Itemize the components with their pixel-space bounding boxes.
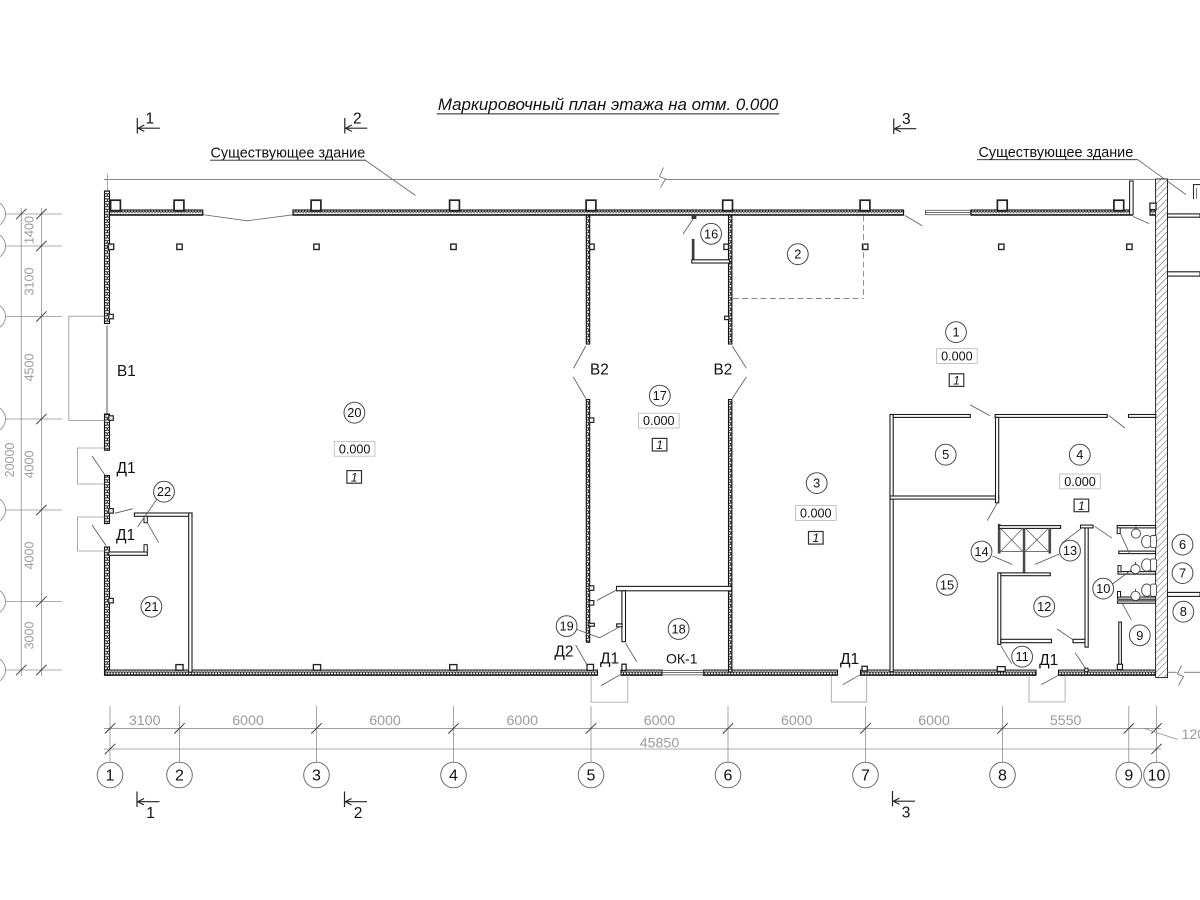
svg-text:0.000: 0.000 <box>941 350 973 364</box>
svg-text:21: 21 <box>144 599 158 614</box>
svg-text:1: 1 <box>106 768 115 785</box>
svg-text:4000: 4000 <box>23 542 37 570</box>
svg-text:3: 3 <box>902 805 911 822</box>
svg-text:Д1: Д1 <box>117 460 136 477</box>
svg-text:1: 1 <box>812 531 819 545</box>
svg-text:7: 7 <box>1179 566 1186 581</box>
svg-text:16: 16 <box>704 226 718 241</box>
svg-text:1200: 1200 <box>1182 727 1200 743</box>
svg-text:4: 4 <box>1076 447 1083 462</box>
svg-text:6000: 6000 <box>507 713 539 729</box>
svg-text:20000: 20000 <box>3 443 17 478</box>
svg-text:6000: 6000 <box>369 713 401 729</box>
svg-text:5: 5 <box>587 768 596 785</box>
svg-text:6000: 6000 <box>232 713 264 729</box>
svg-text:9: 9 <box>1136 628 1143 643</box>
svg-text:6: 6 <box>1179 537 1186 552</box>
svg-text:8: 8 <box>998 768 1007 785</box>
svg-text:2: 2 <box>353 111 362 128</box>
svg-text:0.000: 0.000 <box>643 414 675 428</box>
svg-text:Д1: Д1 <box>1039 652 1058 669</box>
svg-text:В2: В2 <box>590 362 609 379</box>
svg-text:2: 2 <box>175 768 184 785</box>
svg-text:1: 1 <box>953 374 960 388</box>
svg-text:1: 1 <box>351 470 358 484</box>
svg-text:19: 19 <box>559 619 573 634</box>
svg-text:20: 20 <box>347 405 361 420</box>
svg-text:3000: 3000 <box>23 622 37 650</box>
svg-text:6000: 6000 <box>918 713 950 729</box>
svg-text:0.000: 0.000 <box>800 507 832 521</box>
svg-text:Существующее здание: Существующее здание <box>979 145 1134 161</box>
svg-text:1: 1 <box>146 805 155 822</box>
svg-text:8: 8 <box>1180 604 1187 619</box>
svg-text:0.000: 0.000 <box>339 442 371 456</box>
svg-text:3: 3 <box>902 111 911 128</box>
svg-text:15: 15 <box>940 577 954 592</box>
svg-text:3: 3 <box>312 768 321 785</box>
svg-text:4500: 4500 <box>23 354 37 382</box>
svg-text:3: 3 <box>813 476 820 491</box>
svg-text:18: 18 <box>671 622 685 637</box>
svg-text:2: 2 <box>794 247 801 262</box>
svg-text:1: 1 <box>145 111 154 128</box>
svg-text:7: 7 <box>861 768 870 785</box>
svg-text:6: 6 <box>724 768 733 785</box>
svg-text:12: 12 <box>1037 599 1051 614</box>
svg-text:В2: В2 <box>714 362 733 379</box>
svg-text:10: 10 <box>1148 768 1166 785</box>
svg-text:45850: 45850 <box>640 735 680 751</box>
svg-text:9: 9 <box>1124 768 1133 785</box>
svg-text:3100: 3100 <box>23 268 37 296</box>
svg-text:2: 2 <box>354 805 363 822</box>
svg-text:13: 13 <box>1063 543 1077 558</box>
svg-text:Д1: Д1 <box>840 651 859 668</box>
svg-text:1: 1 <box>1078 499 1085 513</box>
svg-text:17: 17 <box>653 388 667 403</box>
svg-text:Д2: Д2 <box>554 644 573 661</box>
svg-text:Д1: Д1 <box>116 527 135 544</box>
svg-text:6000: 6000 <box>781 713 813 729</box>
svg-text:10: 10 <box>1096 581 1110 596</box>
svg-text:1: 1 <box>952 325 959 340</box>
svg-text:Маркировочный план этажа на от: Маркировочный план этажа на отм. 0.000 <box>438 95 779 114</box>
svg-text:14: 14 <box>974 544 988 559</box>
svg-text:Существующее здание: Существующее здание <box>211 146 366 162</box>
svg-text:0.000: 0.000 <box>1064 475 1096 489</box>
svg-text:5: 5 <box>942 447 949 462</box>
svg-text:ОК-1: ОК-1 <box>666 651 698 667</box>
svg-text:11: 11 <box>1015 649 1028 664</box>
svg-text:1: 1 <box>656 438 663 452</box>
svg-text:В1: В1 <box>117 363 136 380</box>
svg-text:4000: 4000 <box>23 451 37 479</box>
svg-text:22: 22 <box>157 484 171 499</box>
svg-text:5550: 5550 <box>1050 713 1082 729</box>
svg-text:Д1: Д1 <box>600 650 619 667</box>
svg-text:3100: 3100 <box>129 713 161 729</box>
svg-text:4: 4 <box>449 768 458 785</box>
svg-text:1400: 1400 <box>23 216 37 244</box>
svg-text:6000: 6000 <box>644 713 676 729</box>
